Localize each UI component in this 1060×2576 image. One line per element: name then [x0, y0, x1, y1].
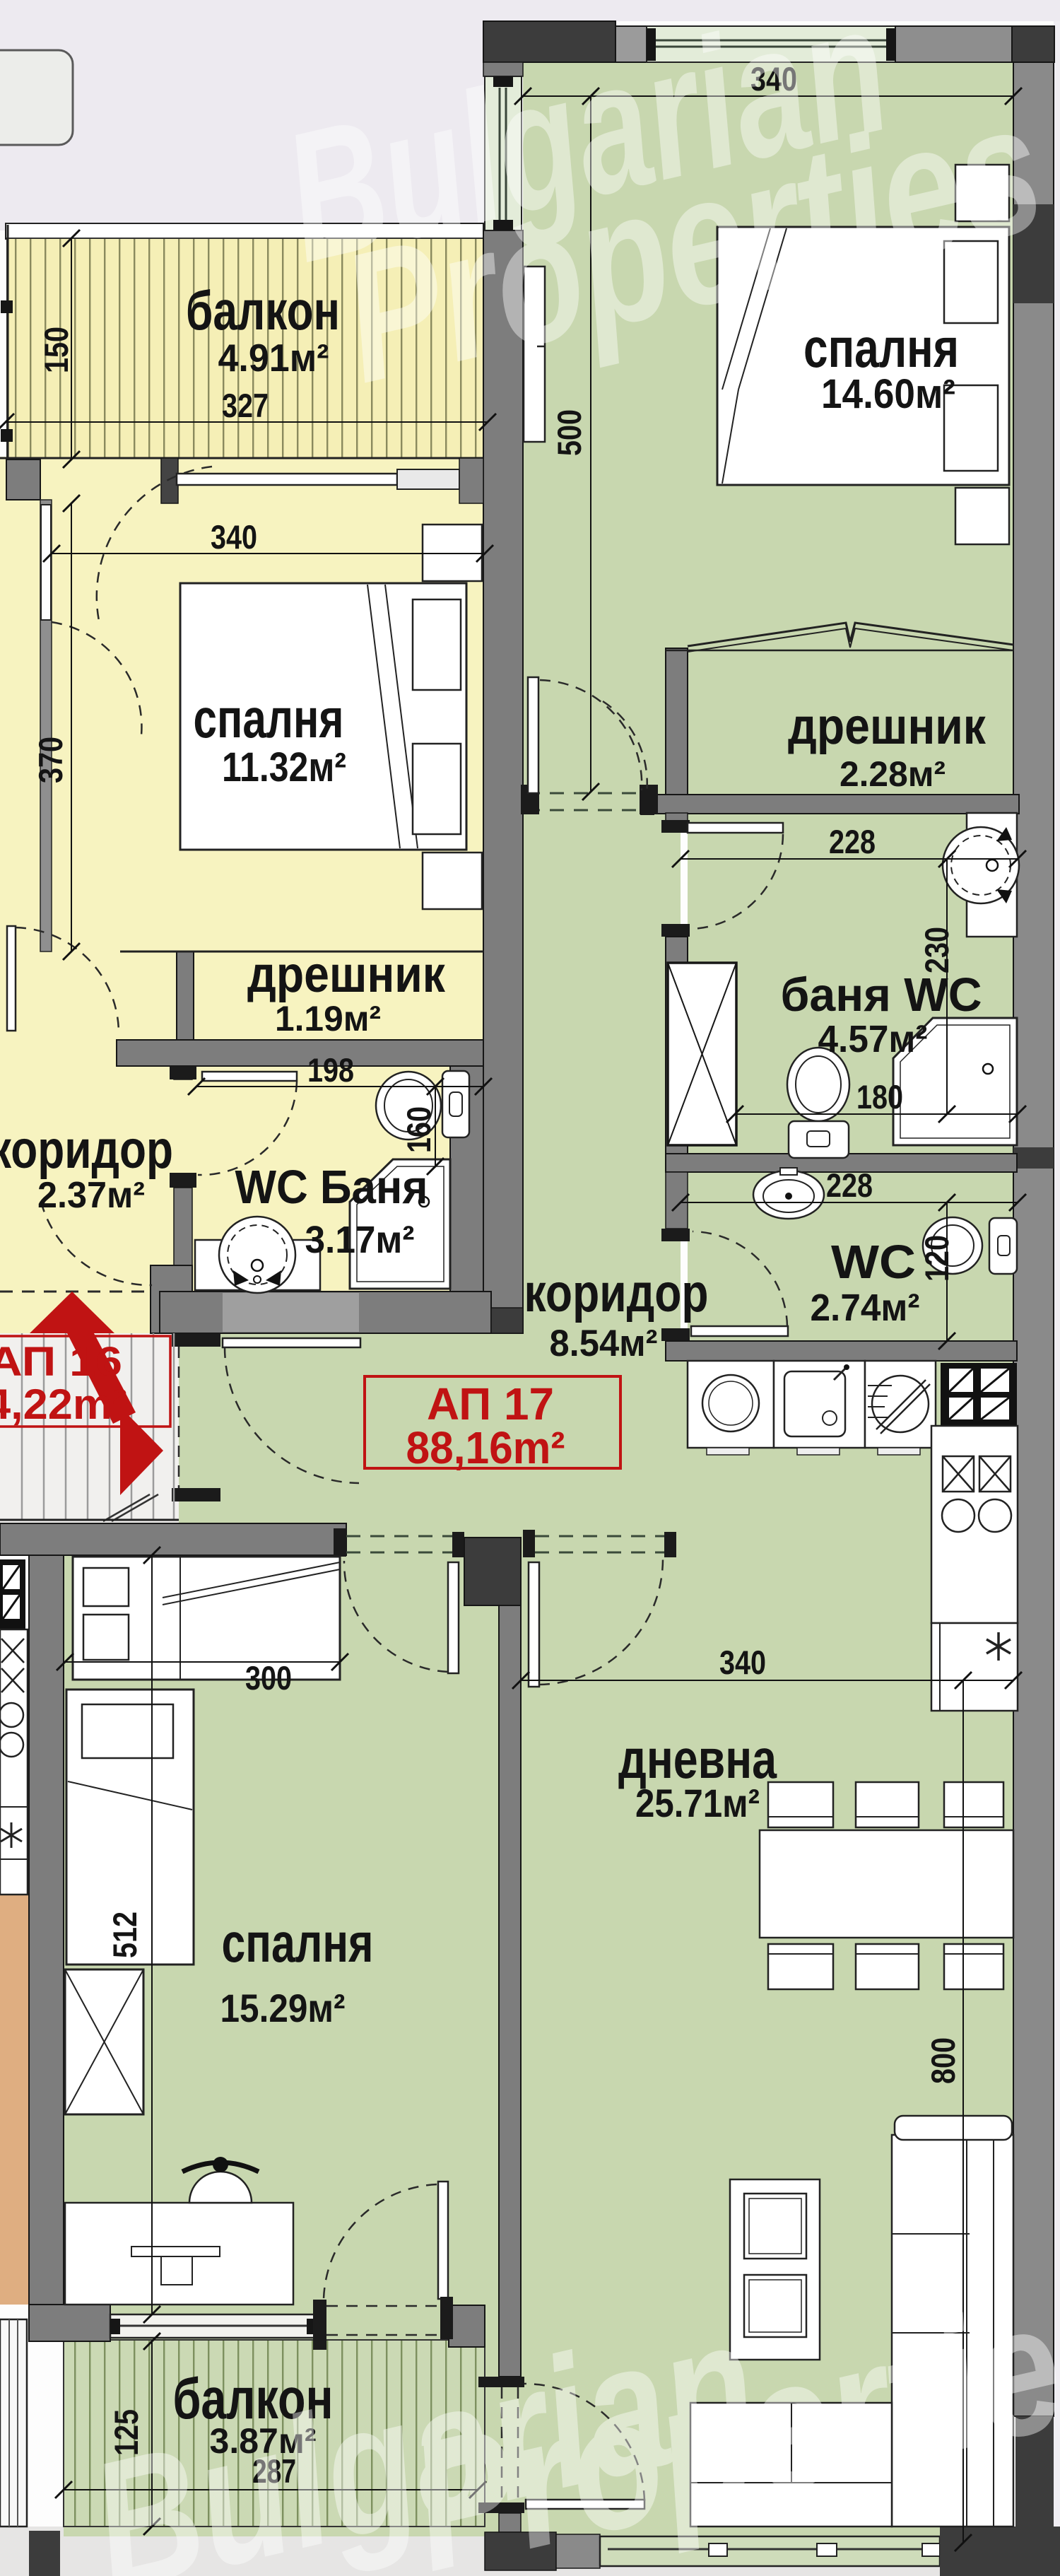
svg-text:300: 300 — [245, 1659, 292, 1697]
svg-text:11.32м²: 11.32м² — [222, 744, 346, 790]
svg-text:спалня: спалня — [222, 1911, 374, 1974]
svg-text:120: 120 — [918, 1235, 955, 1282]
svg-text:228: 228 — [826, 1166, 873, 1204]
svg-text:88,16m²: 88,16m² — [406, 1422, 565, 1473]
svg-text:2.37м²: 2.37м² — [37, 1175, 145, 1216]
svg-text:800: 800 — [924, 2037, 962, 2084]
svg-text:180: 180 — [856, 1078, 903, 1116]
svg-text:коридор: коридор — [0, 1120, 173, 1180]
svg-text:8.54м²: 8.54м² — [550, 1323, 658, 1364]
svg-text:дрешник: дрешник — [247, 947, 446, 1003]
svg-text:WC Баня: WC Баня — [235, 1161, 428, 1214]
svg-text:228: 228 — [829, 823, 876, 860]
svg-text:4,22m²: 4,22m² — [0, 1381, 127, 1428]
svg-text:АП 16: АП 16 — [0, 1339, 122, 1385]
svg-text:15.29м²: 15.29м² — [220, 1986, 346, 2030]
svg-text:баня WC: баня WC — [781, 968, 982, 1021]
svg-text:коридор: коридор — [524, 1263, 709, 1323]
svg-text:14.60м²: 14.60м² — [821, 371, 955, 417]
svg-text:370: 370 — [32, 737, 69, 783]
svg-text:512: 512 — [106, 1911, 143, 1958]
svg-text:500: 500 — [550, 409, 588, 456]
svg-text:4.91м²: 4.91м² — [218, 336, 329, 380]
svg-text:340: 340 — [719, 1644, 766, 1681]
svg-text:2.28м²: 2.28м² — [840, 754, 946, 794]
svg-text:327: 327 — [222, 387, 269, 424]
svg-text:230: 230 — [918, 927, 955, 973]
svg-text:спалня: спалня — [194, 687, 344, 749]
svg-text:дрешник: дрешник — [788, 698, 987, 755]
svg-text:4.57м²: 4.57м² — [818, 1018, 928, 1060]
svg-text:2.74м²: 2.74м² — [811, 1287, 920, 1329]
svg-text:25.71м²: 25.71м² — [635, 1781, 760, 1825]
svg-text:160: 160 — [400, 1106, 437, 1153]
svg-text:WC: WC — [831, 1236, 916, 1289]
svg-text:340: 340 — [211, 518, 257, 556]
svg-text:1.19м²: 1.19м² — [275, 999, 381, 1038]
svg-text:спалня: спалня — [803, 317, 959, 379]
svg-text:198: 198 — [307, 1051, 354, 1089]
svg-text:150: 150 — [37, 327, 75, 373]
svg-text:3.17м²: 3.17м² — [305, 1219, 415, 1261]
